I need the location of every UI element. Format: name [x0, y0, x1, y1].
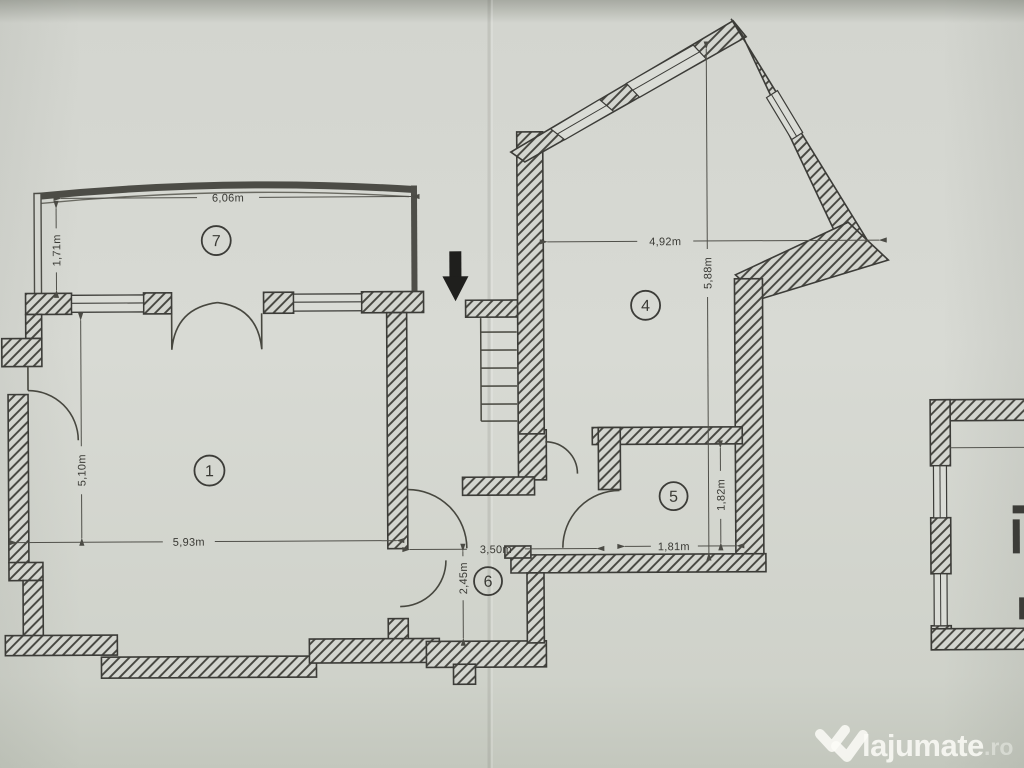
- dim-room7-width: 6,06m: [212, 192, 244, 204]
- dim-room5-depth: 1,82m: [715, 479, 727, 511]
- wall-segment: [8, 395, 29, 563]
- wall-segment: [387, 313, 408, 549]
- dim-room6-depth: 2,45m: [458, 562, 470, 594]
- room-6-number: 6: [484, 574, 493, 591]
- room-1-number: 1: [205, 463, 214, 480]
- dim-room7-depth: 1,71m: [51, 234, 63, 266]
- wall-segment: [453, 664, 475, 684]
- wall-segment: [26, 314, 42, 338]
- dim-room1-depth: 5,10m: [76, 454, 88, 486]
- wall-segment: [101, 656, 316, 678]
- wall-segment: [931, 518, 951, 574]
- wall-segment: [527, 573, 544, 643]
- wall-segment: [144, 293, 172, 314]
- floor-plan-image: 6,06m 1,71m 5,93m 5,10m 4,92m 5,88m 1,81…: [0, 0, 1024, 768]
- wall-segment: [2, 338, 42, 366]
- wall-segment: [362, 291, 424, 312]
- wall-segment: [426, 641, 546, 668]
- wall-segment: [26, 293, 72, 314]
- wall-segment: [511, 554, 766, 573]
- wall-segment: [734, 279, 763, 559]
- window: [72, 295, 144, 312]
- wall-segment: [264, 292, 294, 313]
- dim-room6-width: 3,50m: [480, 544, 512, 556]
- wall-segment: [309, 638, 439, 663]
- wall-segment: [931, 628, 1024, 650]
- window: [294, 294, 362, 311]
- wall-segment: [5, 635, 117, 656]
- room-5-number: 5: [669, 489, 678, 506]
- room-4-number: 4: [641, 298, 650, 315]
- wall-segment: [598, 427, 620, 489]
- watermark-brand: lajumate: [862, 728, 984, 763]
- watermark-tld: .ro: [984, 734, 1013, 760]
- wall-segment: [9, 562, 43, 580]
- wall-segment: [462, 477, 534, 495]
- wall-segment: [23, 580, 43, 637]
- floor-plan-photo: 6,06m 1,71m 5,93m 5,10m 4,92m 5,88m 1,81…: [0, 0, 1024, 768]
- dim-room1-width: 5,93m: [173, 537, 205, 549]
- wall-segment: [518, 430, 546, 480]
- wall-segment: [517, 132, 545, 434]
- balcony-left-wall: [34, 193, 42, 295]
- dim-room4-width: 4,92m: [649, 236, 681, 248]
- dim-room5-width: 1,81m: [658, 541, 690, 553]
- wall-segment: [930, 400, 950, 466]
- window: [933, 466, 946, 518]
- room-7-number: 7: [212, 233, 221, 250]
- wall-segment: [466, 300, 518, 317]
- window: [934, 574, 947, 626]
- dim-room4-depth: 5,88m: [702, 257, 714, 289]
